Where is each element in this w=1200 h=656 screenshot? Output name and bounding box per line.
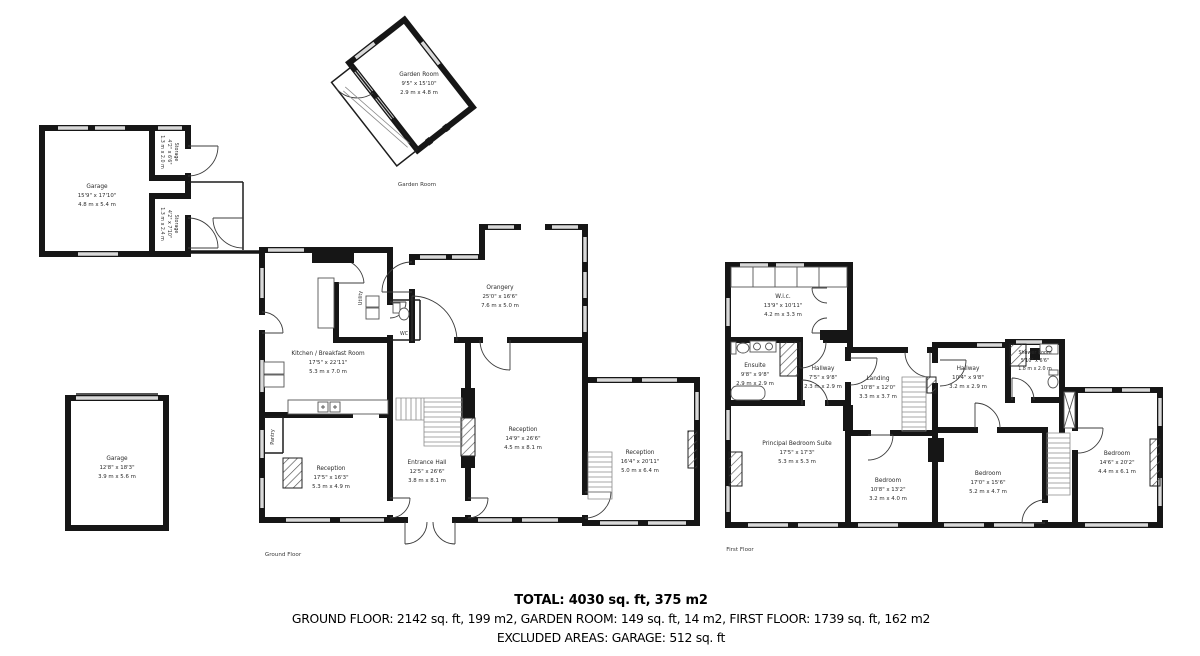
first-floor-caption: First Floor bbox=[726, 547, 754, 553]
room-label: Bedroom bbox=[875, 478, 902, 484]
room-label: Pantry bbox=[270, 429, 276, 445]
room-dim-metric: 1.3 m x 2.0 m bbox=[159, 135, 165, 169]
room-dim-imperial: 14'9" x 26'6" bbox=[505, 436, 540, 442]
room-label: Bedroom bbox=[1104, 451, 1131, 457]
room-dim-metric: 4.8 m x 5.4 m bbox=[78, 202, 116, 208]
wall bbox=[68, 398, 166, 528]
room-label: Garage bbox=[106, 456, 128, 462]
room-dim-imperial: 15'9" x 17'10" bbox=[78, 193, 117, 199]
room-dim-metric: 3.2 m x 2.9 m bbox=[949, 384, 987, 390]
room-dim-metric: 2.3 m x 2.9 m bbox=[804, 384, 842, 390]
wardrobe-row bbox=[731, 267, 847, 287]
room-dim-metric: 5.2 m x 4.7 m bbox=[969, 489, 1007, 495]
floor-breakdown-text: GROUND FLOOR: 2142 sq. ft, 199 m2, GARDE… bbox=[292, 611, 930, 626]
storage-top-label: Storage 4'2" x 6'6" 1.3 m x 2.0 m bbox=[159, 135, 179, 169]
room-dim-metric: 7.6 m x 5.0 m bbox=[481, 303, 519, 309]
garden-room-plan: Garden Room 9'5" x 15'10" 2.9 m x 4.8 m bbox=[329, 20, 475, 169]
room-label: Hallway bbox=[812, 366, 835, 372]
bathtub bbox=[731, 386, 765, 400]
room-dim-metric: 1.8 m x 2.0 m bbox=[1018, 366, 1052, 372]
room-dim-imperial: 17'5" x 17'3" bbox=[779, 450, 814, 456]
utility-appliance bbox=[366, 308, 379, 319]
room-dim-metric: 5.3 m x 7.0 m bbox=[309, 369, 347, 375]
door-arc bbox=[188, 146, 243, 248]
room-label: Storage bbox=[173, 215, 179, 234]
appliance bbox=[264, 362, 284, 374]
sink bbox=[754, 343, 761, 350]
toilet bbox=[1048, 376, 1058, 388]
chimney bbox=[312, 247, 354, 263]
wall-block bbox=[461, 388, 475, 418]
room-label: Reception bbox=[509, 427, 538, 433]
room-dim-imperial: 10'8" x 12'0" bbox=[860, 385, 895, 391]
room-dim-metric: 4.2 m x 3.3 m bbox=[764, 312, 802, 318]
room-label: Kitchen / Breakfast Room bbox=[291, 351, 365, 357]
toilet bbox=[737, 343, 749, 353]
room-dim-imperial: 16'4" x 20'11" bbox=[621, 459, 660, 465]
utility-label: Utility bbox=[358, 291, 364, 305]
room-dim-imperial: 10'4" x 9'8" bbox=[952, 375, 984, 381]
pantry-label: Pantry bbox=[270, 429, 276, 445]
room-dim-metric: 3.2 m x 4.0 m bbox=[869, 496, 907, 502]
wall-block bbox=[461, 456, 475, 468]
floorplan-drawing: Garage 15'9" x 17'10" 4.8 m x 5.4 m Stor… bbox=[0, 0, 1200, 656]
ground-floor-caption: Ground Floor bbox=[265, 552, 302, 558]
excluded-areas-text: EXCLUDED AREAS: GARAGE: 512 sq. ft bbox=[497, 630, 726, 645]
room-dim-metric: 2.9 m x 2.9 m bbox=[736, 381, 774, 387]
wall-block bbox=[820, 330, 848, 340]
room-label: Reception bbox=[626, 450, 655, 456]
room-dim-metric: 5.0 m x 6.4 m bbox=[621, 468, 659, 474]
room-dim-metric: 4.5 m x 8.1 m bbox=[504, 445, 542, 451]
toilet-tank bbox=[731, 342, 736, 354]
room-label: WC bbox=[400, 331, 409, 337]
room-label: Entrance Hall bbox=[408, 460, 447, 466]
wall-block bbox=[928, 438, 944, 462]
room-dim-imperial: 13'9" x 10'11" bbox=[764, 303, 803, 309]
utility-appliance bbox=[366, 296, 379, 307]
room-label: Storage bbox=[173, 143, 179, 162]
chimney-hatch bbox=[927, 377, 936, 393]
floorplan-page: Garage 15'9" x 17'10" 4.8 m x 5.4 m Stor… bbox=[0, 0, 1200, 656]
room-dim-metric: 3.3 m x 3.7 m bbox=[859, 394, 897, 400]
lobby-partition bbox=[188, 182, 243, 250]
room-dim-imperial: 10'8" x 13'2" bbox=[870, 487, 905, 493]
room-dim-imperial: 17'0" x 15'6" bbox=[970, 480, 1005, 486]
room-label: Utility bbox=[358, 291, 364, 305]
room-dim-imperial: 5'10" x 6'6" bbox=[1021, 358, 1049, 364]
room-dim-metric: 5.3 m x 5.3 m bbox=[778, 459, 816, 465]
room-label: Reception bbox=[317, 466, 346, 472]
room-label: Ensuite bbox=[744, 363, 766, 369]
chimney-hatch bbox=[283, 458, 302, 488]
room-dim-imperial: 4'2" x 6'6" bbox=[166, 139, 172, 164]
room-dim-imperial: 14'6" x 20'2" bbox=[1099, 460, 1134, 466]
room-dim-metric: 3.8 m x 8.1 m bbox=[408, 478, 446, 484]
toilet bbox=[399, 308, 409, 320]
appliance bbox=[264, 375, 284, 387]
room-dim-imperial: 25'0" x 16'6" bbox=[482, 294, 517, 300]
room-label: W.i.c. bbox=[775, 294, 791, 300]
garage-bottom-plan: Garage 12'8" x 18'3" 3.9 m x 5.6 m bbox=[68, 394, 166, 528]
room-label: Garage bbox=[86, 184, 108, 190]
room-dim-imperial: 12'8" x 18'3" bbox=[99, 465, 134, 471]
room-label: Garden Room bbox=[399, 72, 439, 78]
area-summary: TOTAL: 4030 sq. ft, 375 m2 GROUND FLOOR:… bbox=[292, 593, 930, 645]
sink bbox=[766, 343, 773, 350]
storage-bottom-label: Storage 4'2" x 7'10" 1.3 m x 2.4 m bbox=[159, 207, 179, 241]
room-label: Principal Bedroom Suite bbox=[762, 441, 832, 447]
room-dim-imperial: 12'5" x 26'6" bbox=[409, 469, 444, 475]
room-dim-metric: 5.3 m x 4.9 m bbox=[312, 484, 350, 490]
room-dim-metric: 1.3 m x 2.4 m bbox=[159, 207, 165, 241]
room-dim-imperial: 17'5" x 16'3" bbox=[313, 475, 348, 481]
room-label: Bedroom bbox=[975, 471, 1002, 477]
room-dim-imperial: 4'2" x 7'10" bbox=[166, 210, 172, 238]
room-label: Shower Room bbox=[1018, 350, 1051, 356]
room-dim-imperial: 17'5" x 22'11" bbox=[309, 360, 348, 366]
room-dim-metric: 4.4 m x 6.1 m bbox=[1098, 469, 1136, 475]
chimney-hatch bbox=[1150, 439, 1160, 486]
wall-block bbox=[843, 405, 853, 431]
chimney-hatch bbox=[688, 431, 697, 468]
garage-top-plan: Garage 15'9" x 17'10" 4.8 m x 5.4 m Stor… bbox=[42, 128, 262, 254]
total-area-text: TOTAL: 4030 sq. ft, 375 m2 bbox=[514, 593, 707, 608]
room-label: Hallway bbox=[957, 366, 980, 372]
room-dim-metric: 3.9 m x 5.6 m bbox=[98, 474, 136, 480]
room-dim-imperial: 9'5" x 15'10" bbox=[401, 81, 436, 87]
chimney-hatch bbox=[461, 418, 475, 456]
partition bbox=[264, 300, 420, 453]
chimney-hatch bbox=[729, 452, 742, 486]
toilet-tank bbox=[393, 303, 400, 313]
room-label: Orangery bbox=[486, 285, 514, 291]
kitchen-island bbox=[318, 278, 334, 328]
room-dim-imperial: 9'8" x 9'8" bbox=[741, 372, 769, 378]
room-dim-metric: 2.9 m x 4.8 m bbox=[400, 90, 438, 96]
first-floor-plan: W.i.c. 13'9" x 10'11" 4.2 m x 3.3 m Ensu… bbox=[728, 265, 1160, 525]
room-label: Landing bbox=[866, 376, 889, 382]
garden-room-caption: Garden Room bbox=[398, 182, 436, 188]
ground-floor-plan: Kitchen / Breakfast Room 17'5" x 22'11" … bbox=[262, 227, 697, 544]
shower-hatch bbox=[780, 342, 798, 376]
room-dim-imperial: 7'5" x 9'8" bbox=[809, 375, 837, 381]
